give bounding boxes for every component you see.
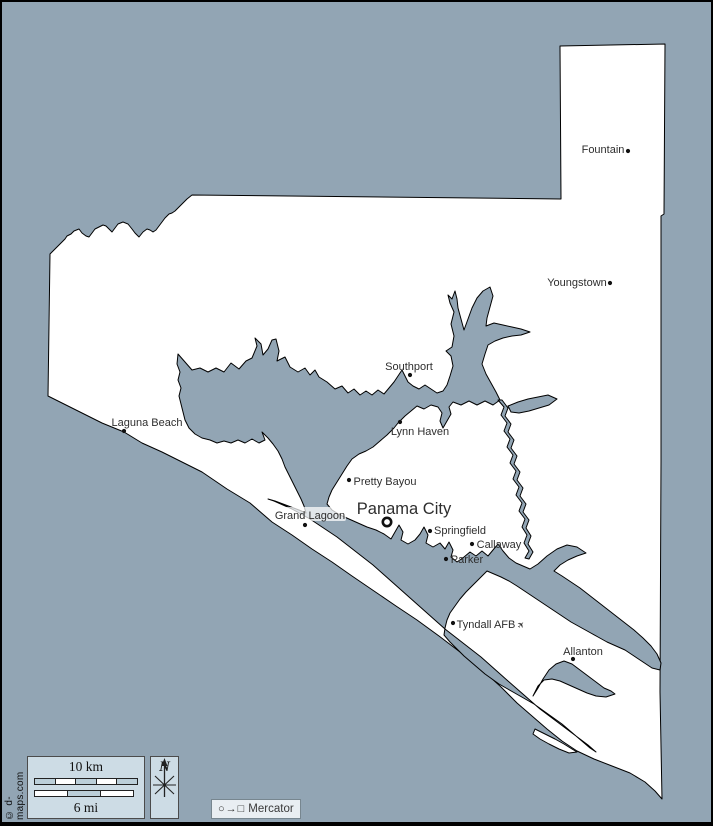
town-label: Springfield <box>434 525 486 537</box>
town-label: Lynn Haven <box>391 426 449 438</box>
scale-segment <box>35 779 56 784</box>
town-dot <box>408 373 412 377</box>
town-label: Grand Lagoon <box>275 510 345 522</box>
town-dot <box>470 542 474 546</box>
town-label: Fountain <box>582 144 625 156</box>
map-canvas: FountainYoungstownSouthportLynn HavenLag… <box>0 0 713 826</box>
town-dot <box>428 529 432 533</box>
county-map-svg: FountainYoungstownSouthportLynn HavenLag… <box>2 2 713 826</box>
scale-km-label: 10 km <box>34 760 138 774</box>
town-label: Allanton <box>563 646 603 658</box>
compass-panel: N <box>150 756 179 819</box>
attribution-text: © d-maps.com <box>4 750 26 820</box>
town-label: Parker <box>451 554 484 566</box>
town-label: Tyndall AFB <box>457 619 516 631</box>
projection-box: ○→□ Mercator <box>211 799 301 819</box>
scale-segment <box>68 791 101 796</box>
projection-name: Mercator <box>248 803 293 815</box>
north-arrow-icon <box>151 757 178 799</box>
town-label: Callaway <box>477 539 522 551</box>
town-label: Southport <box>385 361 433 373</box>
town-dot <box>444 557 448 561</box>
projection-icon: ○→□ <box>218 803 245 815</box>
scale-mi-bar <box>34 790 134 797</box>
town-dot <box>398 420 402 424</box>
town-label: Panama City <box>357 500 452 518</box>
scale-segment <box>97 779 118 784</box>
town-dot <box>571 657 575 661</box>
town-dot <box>451 621 455 625</box>
scale-segment <box>56 779 77 784</box>
town-dot <box>626 149 630 153</box>
scale-bar-panel: 10 km 6 mi <box>27 756 145 819</box>
town-label: Laguna Beach <box>112 417 183 429</box>
town-label: Youngstown <box>547 277 607 289</box>
town-label: Pretty Bayou <box>354 476 417 488</box>
scale-mi-label: 6 mi <box>34 801 138 815</box>
town-dot <box>122 429 126 433</box>
scale-segment <box>35 791 68 796</box>
scale-segment <box>101 791 133 796</box>
town-dot <box>608 281 612 285</box>
scale-segment <box>76 779 97 784</box>
county-seat-marker <box>383 518 391 526</box>
scale-km-bar <box>34 778 138 785</box>
scale-segment <box>117 779 137 784</box>
town-dot <box>303 523 307 527</box>
town-dot <box>347 478 351 482</box>
